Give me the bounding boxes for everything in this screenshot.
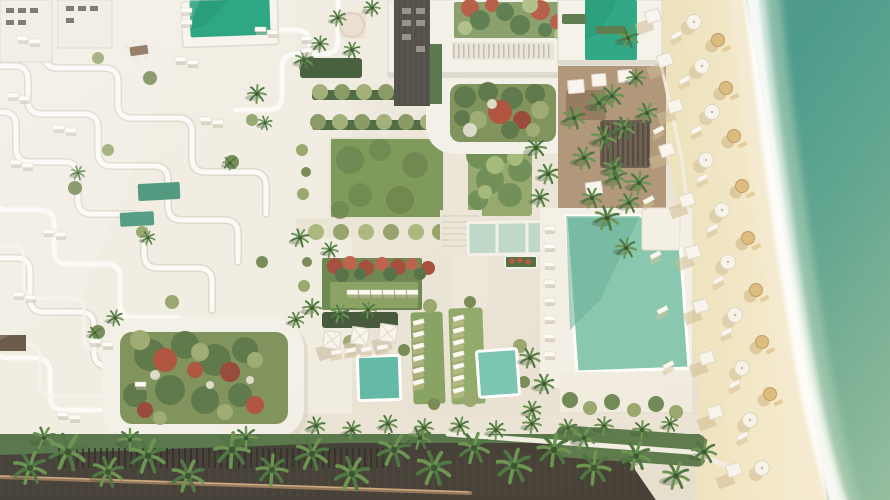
scene-canvas — [0, 0, 890, 500]
light-overlay — [0, 0, 890, 500]
scene-layers — [0, 0, 890, 500]
aerial-resort-rendering — [0, 0, 890, 500]
